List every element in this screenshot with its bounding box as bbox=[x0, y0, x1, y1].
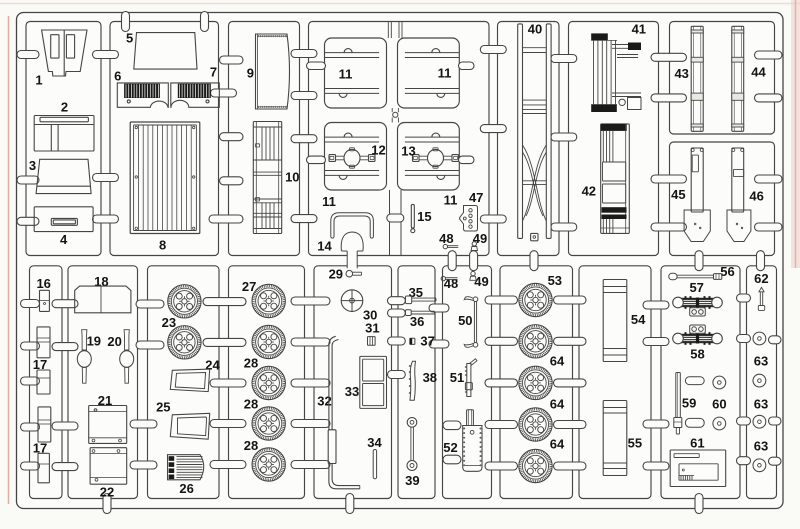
svg-text:38: 38 bbox=[423, 370, 437, 385]
svg-text:6: 6 bbox=[114, 69, 121, 84]
svg-text:47: 47 bbox=[469, 190, 483, 205]
svg-text:61: 61 bbox=[690, 436, 704, 451]
svg-text:56: 56 bbox=[720, 264, 734, 279]
svg-text:46: 46 bbox=[749, 188, 763, 203]
svg-text:40: 40 bbox=[528, 22, 542, 37]
svg-text:51: 51 bbox=[450, 370, 464, 385]
svg-text:22: 22 bbox=[100, 485, 114, 500]
svg-text:15: 15 bbox=[417, 209, 431, 224]
svg-text:24: 24 bbox=[205, 358, 220, 373]
svg-text:23: 23 bbox=[162, 315, 176, 330]
svg-text:31: 31 bbox=[365, 321, 379, 336]
svg-text:52: 52 bbox=[443, 440, 457, 455]
svg-text:33: 33 bbox=[345, 384, 359, 399]
svg-text:50: 50 bbox=[458, 313, 472, 328]
svg-text:11: 11 bbox=[444, 193, 458, 208]
svg-text:7: 7 bbox=[210, 65, 217, 80]
svg-text:39: 39 bbox=[405, 473, 419, 488]
svg-text:13: 13 bbox=[401, 143, 415, 158]
svg-text:48: 48 bbox=[439, 231, 453, 246]
svg-text:27: 27 bbox=[242, 279, 256, 294]
svg-text:41: 41 bbox=[632, 21, 646, 36]
svg-text:4: 4 bbox=[60, 232, 68, 247]
svg-text:29: 29 bbox=[329, 266, 343, 281]
svg-text:45: 45 bbox=[671, 187, 685, 202]
svg-text:57: 57 bbox=[689, 280, 703, 295]
svg-text:55: 55 bbox=[628, 436, 642, 451]
svg-text:12: 12 bbox=[371, 143, 385, 158]
svg-text:59: 59 bbox=[682, 395, 696, 410]
svg-text:10: 10 bbox=[285, 169, 299, 184]
svg-text:19: 19 bbox=[87, 334, 101, 349]
svg-text:49: 49 bbox=[474, 274, 488, 289]
svg-text:16: 16 bbox=[36, 276, 50, 291]
svg-text:14: 14 bbox=[317, 239, 332, 254]
svg-text:28: 28 bbox=[244, 397, 258, 412]
svg-text:63: 63 bbox=[754, 397, 768, 412]
svg-text:11: 11 bbox=[438, 66, 452, 81]
svg-text:49: 49 bbox=[473, 231, 487, 246]
svg-text:36: 36 bbox=[410, 314, 424, 329]
svg-text:11: 11 bbox=[339, 66, 353, 81]
svg-text:25: 25 bbox=[156, 400, 170, 415]
svg-text:60: 60 bbox=[712, 397, 726, 412]
svg-text:5: 5 bbox=[126, 31, 133, 46]
svg-text:64: 64 bbox=[550, 397, 565, 412]
svg-text:2: 2 bbox=[61, 100, 68, 115]
svg-text:28: 28 bbox=[244, 438, 258, 453]
svg-text:64: 64 bbox=[550, 437, 565, 452]
svg-text:54: 54 bbox=[631, 312, 646, 327]
svg-text:34: 34 bbox=[367, 435, 382, 450]
svg-text:26: 26 bbox=[179, 481, 193, 496]
svg-text:37: 37 bbox=[420, 333, 434, 348]
svg-text:64: 64 bbox=[550, 354, 565, 369]
svg-text:28: 28 bbox=[244, 356, 258, 371]
svg-text:44: 44 bbox=[751, 64, 766, 79]
svg-text:63: 63 bbox=[754, 439, 768, 454]
svg-text:58: 58 bbox=[690, 346, 704, 361]
svg-text:42: 42 bbox=[582, 183, 596, 198]
svg-text:1: 1 bbox=[35, 73, 42, 88]
svg-text:9: 9 bbox=[247, 66, 254, 81]
svg-text:62: 62 bbox=[754, 271, 768, 286]
svg-text:3: 3 bbox=[29, 158, 36, 173]
svg-text:63: 63 bbox=[754, 354, 768, 369]
svg-text:20: 20 bbox=[107, 334, 121, 349]
svg-text:32: 32 bbox=[317, 393, 331, 408]
svg-text:11: 11 bbox=[322, 194, 336, 209]
svg-text:43: 43 bbox=[674, 66, 688, 81]
svg-text:53: 53 bbox=[548, 273, 562, 288]
svg-text:8: 8 bbox=[159, 238, 166, 253]
